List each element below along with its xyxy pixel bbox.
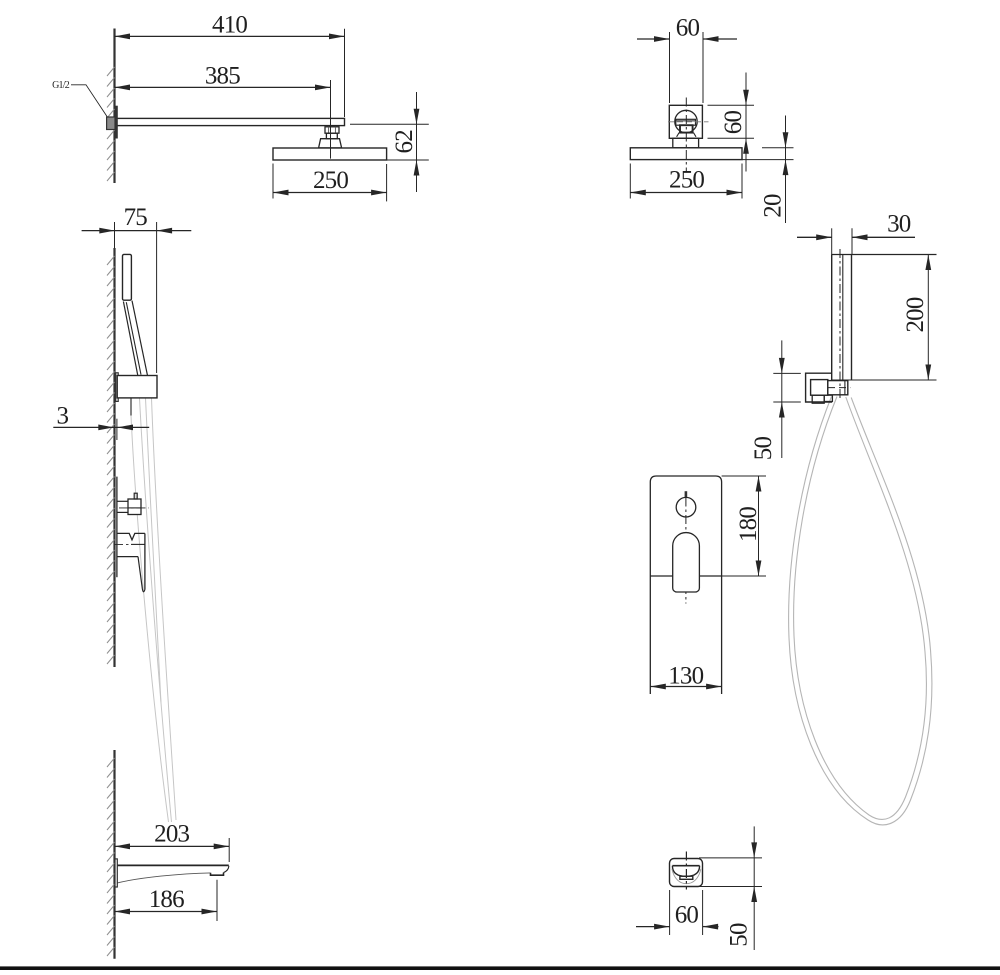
svg-text:203: 203: [154, 821, 189, 848]
svg-text:250: 250: [669, 167, 704, 194]
svg-text:50: 50: [750, 437, 777, 461]
svg-text:20: 20: [760, 194, 787, 218]
svg-text:G1/2: G1/2: [52, 80, 70, 91]
svg-text:60: 60: [676, 15, 700, 42]
svg-text:3: 3: [57, 403, 69, 430]
svg-text:200: 200: [902, 297, 929, 332]
svg-text:60: 60: [675, 902, 699, 929]
svg-text:75: 75: [124, 204, 148, 231]
svg-text:186: 186: [149, 886, 184, 913]
svg-text:62: 62: [391, 130, 418, 154]
svg-text:410: 410: [212, 12, 247, 39]
svg-text:60: 60: [720, 111, 747, 135]
svg-text:30: 30: [887, 211, 911, 238]
svg-text:385: 385: [205, 63, 240, 90]
svg-text:250: 250: [313, 167, 348, 194]
svg-text:50: 50: [726, 923, 753, 947]
svg-text:130: 130: [668, 663, 703, 690]
svg-text:180: 180: [735, 507, 762, 542]
